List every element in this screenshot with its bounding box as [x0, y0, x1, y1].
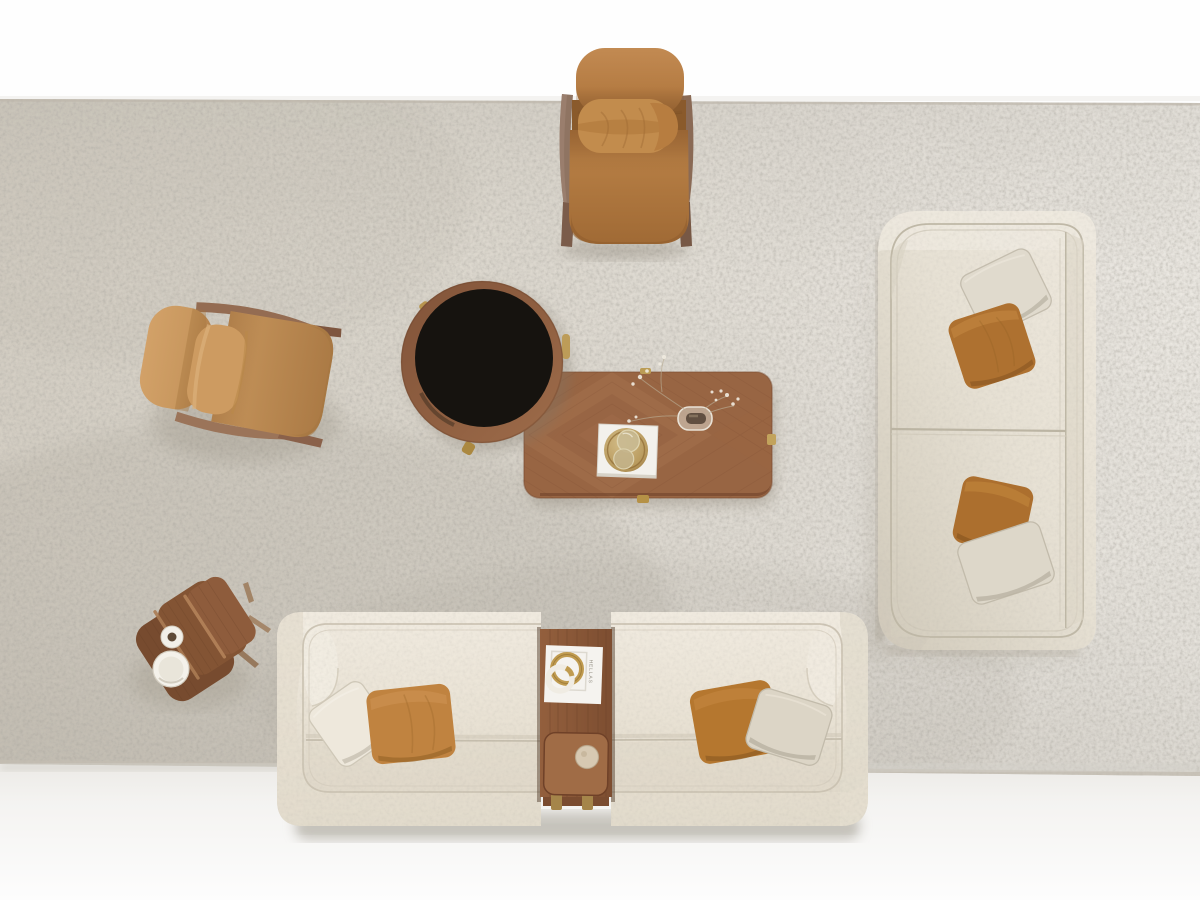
svg-text:HELLAS: HELLAS — [587, 660, 594, 684]
